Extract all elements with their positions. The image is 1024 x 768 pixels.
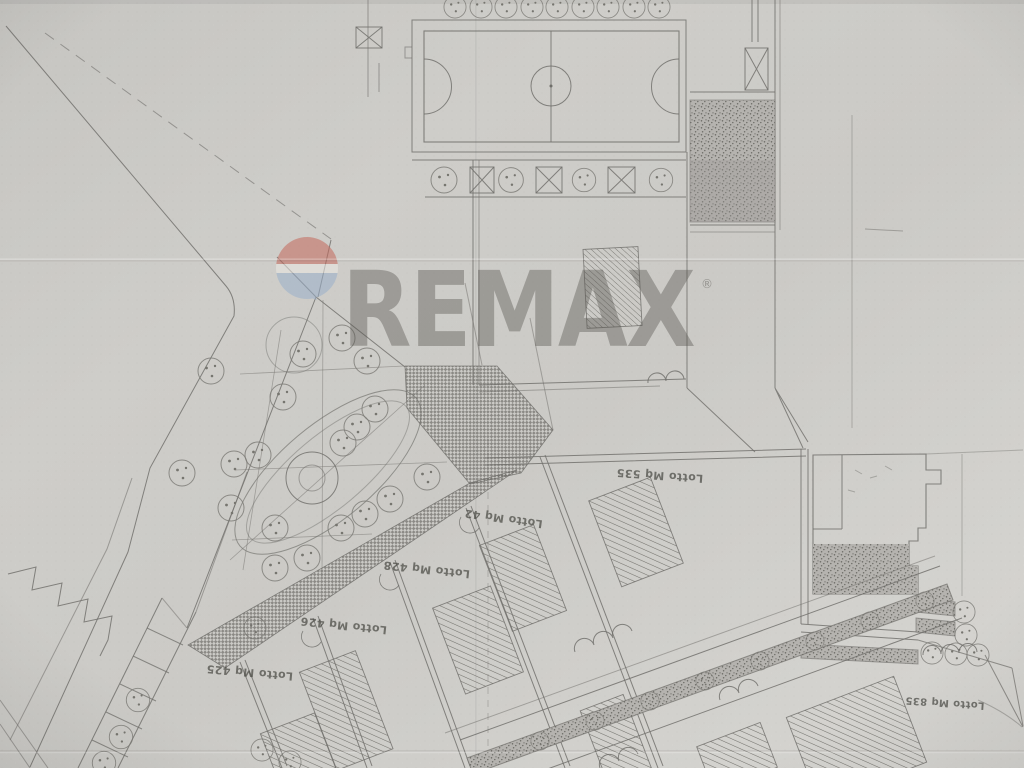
photo-vignette: [0, 0, 1024, 768]
site-plan-photo: Lotto Mq 535 Lotto Mq 42 Lotto Mq 428 Lo…: [0, 0, 1024, 768]
site-plan-drawing: Lotto Mq 535 Lotto Mq 42 Lotto Mq 428 Lo…: [0, 0, 1024, 768]
